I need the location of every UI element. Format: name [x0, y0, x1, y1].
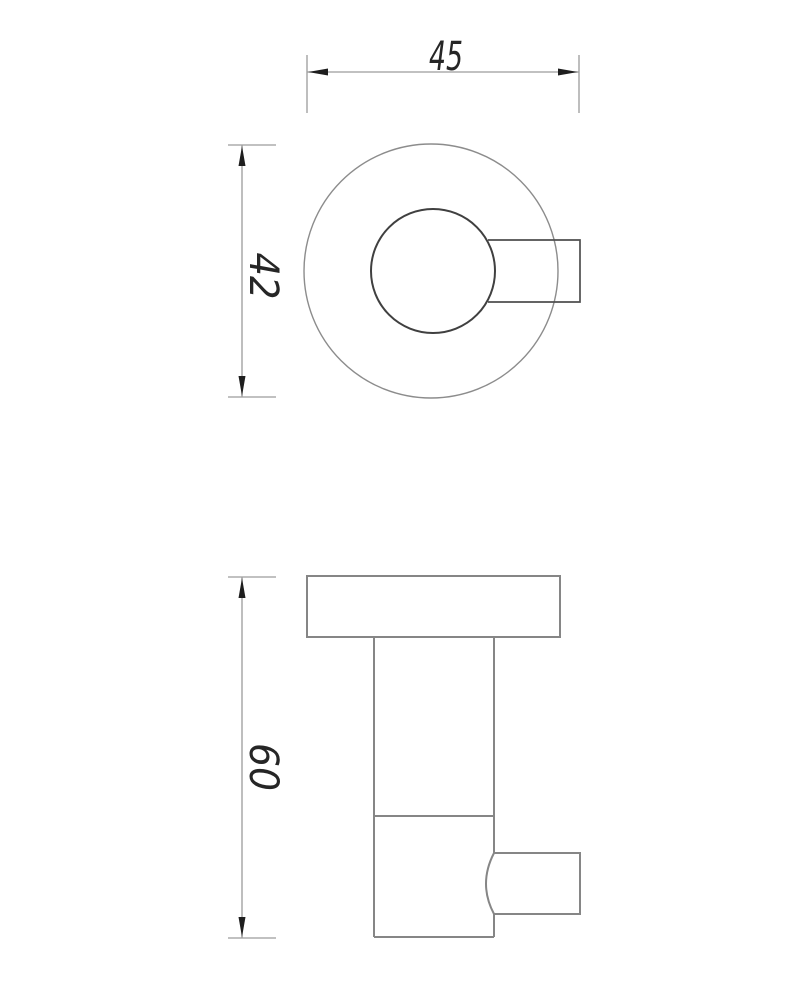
dimension-flange-diameter: 42 [228, 145, 286, 397]
dim45-arrowhead-right [558, 69, 578, 76]
hook-base-circle [371, 209, 495, 333]
side-view [307, 576, 580, 937]
dimension-overall-height: 60 [228, 577, 286, 938]
wall-plate-outline [307, 576, 560, 637]
hook-front-outline [488, 240, 580, 302]
body-right-edge-with-hook-fillet [486, 637, 494, 937]
dimension-overall-width: 45 [307, 34, 579, 113]
dim60-arrowhead-bottom [239, 917, 246, 937]
dim42-arrowhead-top [239, 146, 246, 166]
drawing-page: 45 42 60 [0, 0, 809, 1000]
flange-circle [304, 144, 558, 398]
technical-drawing-canvas: 45 42 60 [0, 0, 809, 1000]
dim42-label: 42 [240, 253, 286, 300]
dim42-arrowhead-bottom [239, 376, 246, 396]
dim60-label: 60 [240, 743, 286, 791]
dim45-label: 45 [429, 34, 463, 80]
dim60-arrowhead-top [239, 578, 246, 598]
hook-side-outline [494, 853, 580, 914]
dim45-arrowhead-left [308, 69, 328, 76]
front-view [304, 144, 580, 398]
